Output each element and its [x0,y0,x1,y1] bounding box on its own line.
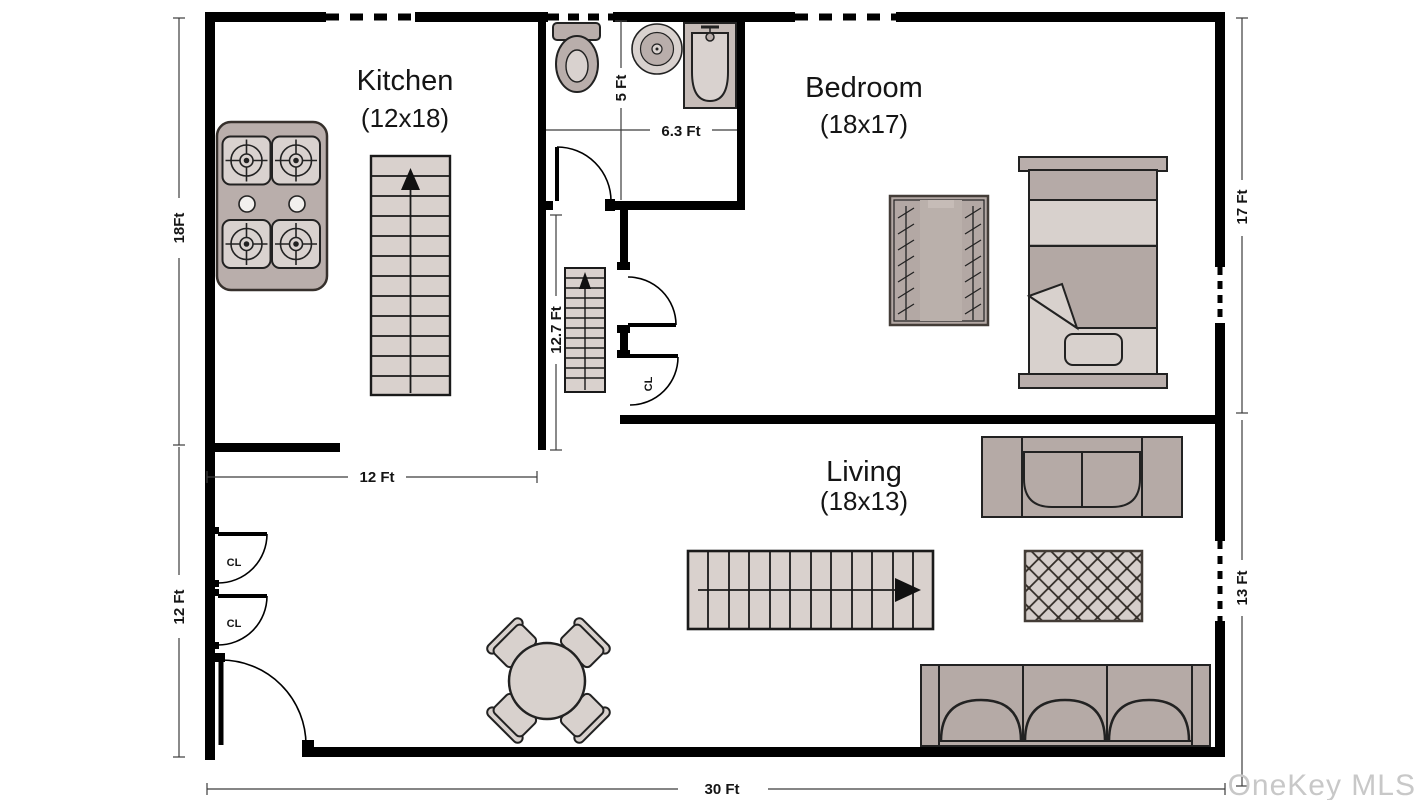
bathroom-door [557,147,611,201]
living-label: Living [826,456,902,488]
bathroom-sink [632,24,682,74]
bathroom-toilet [553,23,600,92]
bedroom-size-label: (18x17) [820,109,908,139]
dim-left-bottom: 12 Ft [171,589,188,624]
bathroom-bathtub [684,23,736,108]
living-rug [1025,551,1142,621]
kitchen-label: Kitchen [357,65,454,97]
kitchen-stove [217,122,327,290]
living-size-label: (18x13) [820,486,908,516]
kitchen-staircase [371,156,450,395]
living-staircase [688,551,933,629]
hall-staircase [565,268,605,392]
stove-knob [289,196,305,212]
dim-hall-stairs: 12.7 Ft [548,306,565,354]
living-sofa [921,665,1210,746]
bedroom-door [628,277,676,325]
stove-knob [239,196,255,212]
closet-door-1 [218,534,267,583]
floor-plan-svg: Kitchen (12x18) Bedroom (18x17) Living (… [0,0,1423,800]
dim-bath-width: 6.3 Ft [661,123,700,140]
closet-label-2: CL [227,618,242,630]
hall-closet-label: CL [643,376,655,391]
bed-pillow-band [1029,170,1157,200]
dim-right-top: 17 Ft [1234,189,1251,224]
bed-headboard [1019,157,1167,171]
dim-left-top: 18Ft [171,213,188,244]
closet-label-1: CL [227,557,242,569]
bedroom-bed [1019,157,1167,388]
bedroom-label: Bedroom [805,72,923,104]
watermark: OneKey MLS [1228,769,1416,800]
floor-plan: Kitchen (12x18) Bedroom (18x17) Living (… [0,0,1423,800]
dim-kitchen-width: 12 Ft [359,469,394,486]
dim-right-bottom: 13 Ft [1234,570,1251,605]
bed-footboard [1019,374,1167,388]
closet-door-2 [218,596,267,645]
entry-door [221,660,306,745]
round-table [509,643,585,719]
dining-table-set [485,616,612,745]
bedroom-rug [890,196,988,325]
kitchen-size-label: (12x18) [361,103,449,133]
dim-bottom: 30 Ft [704,781,739,798]
dim-bath-height: 5 Ft [613,75,630,102]
living-loveseat [982,437,1182,517]
